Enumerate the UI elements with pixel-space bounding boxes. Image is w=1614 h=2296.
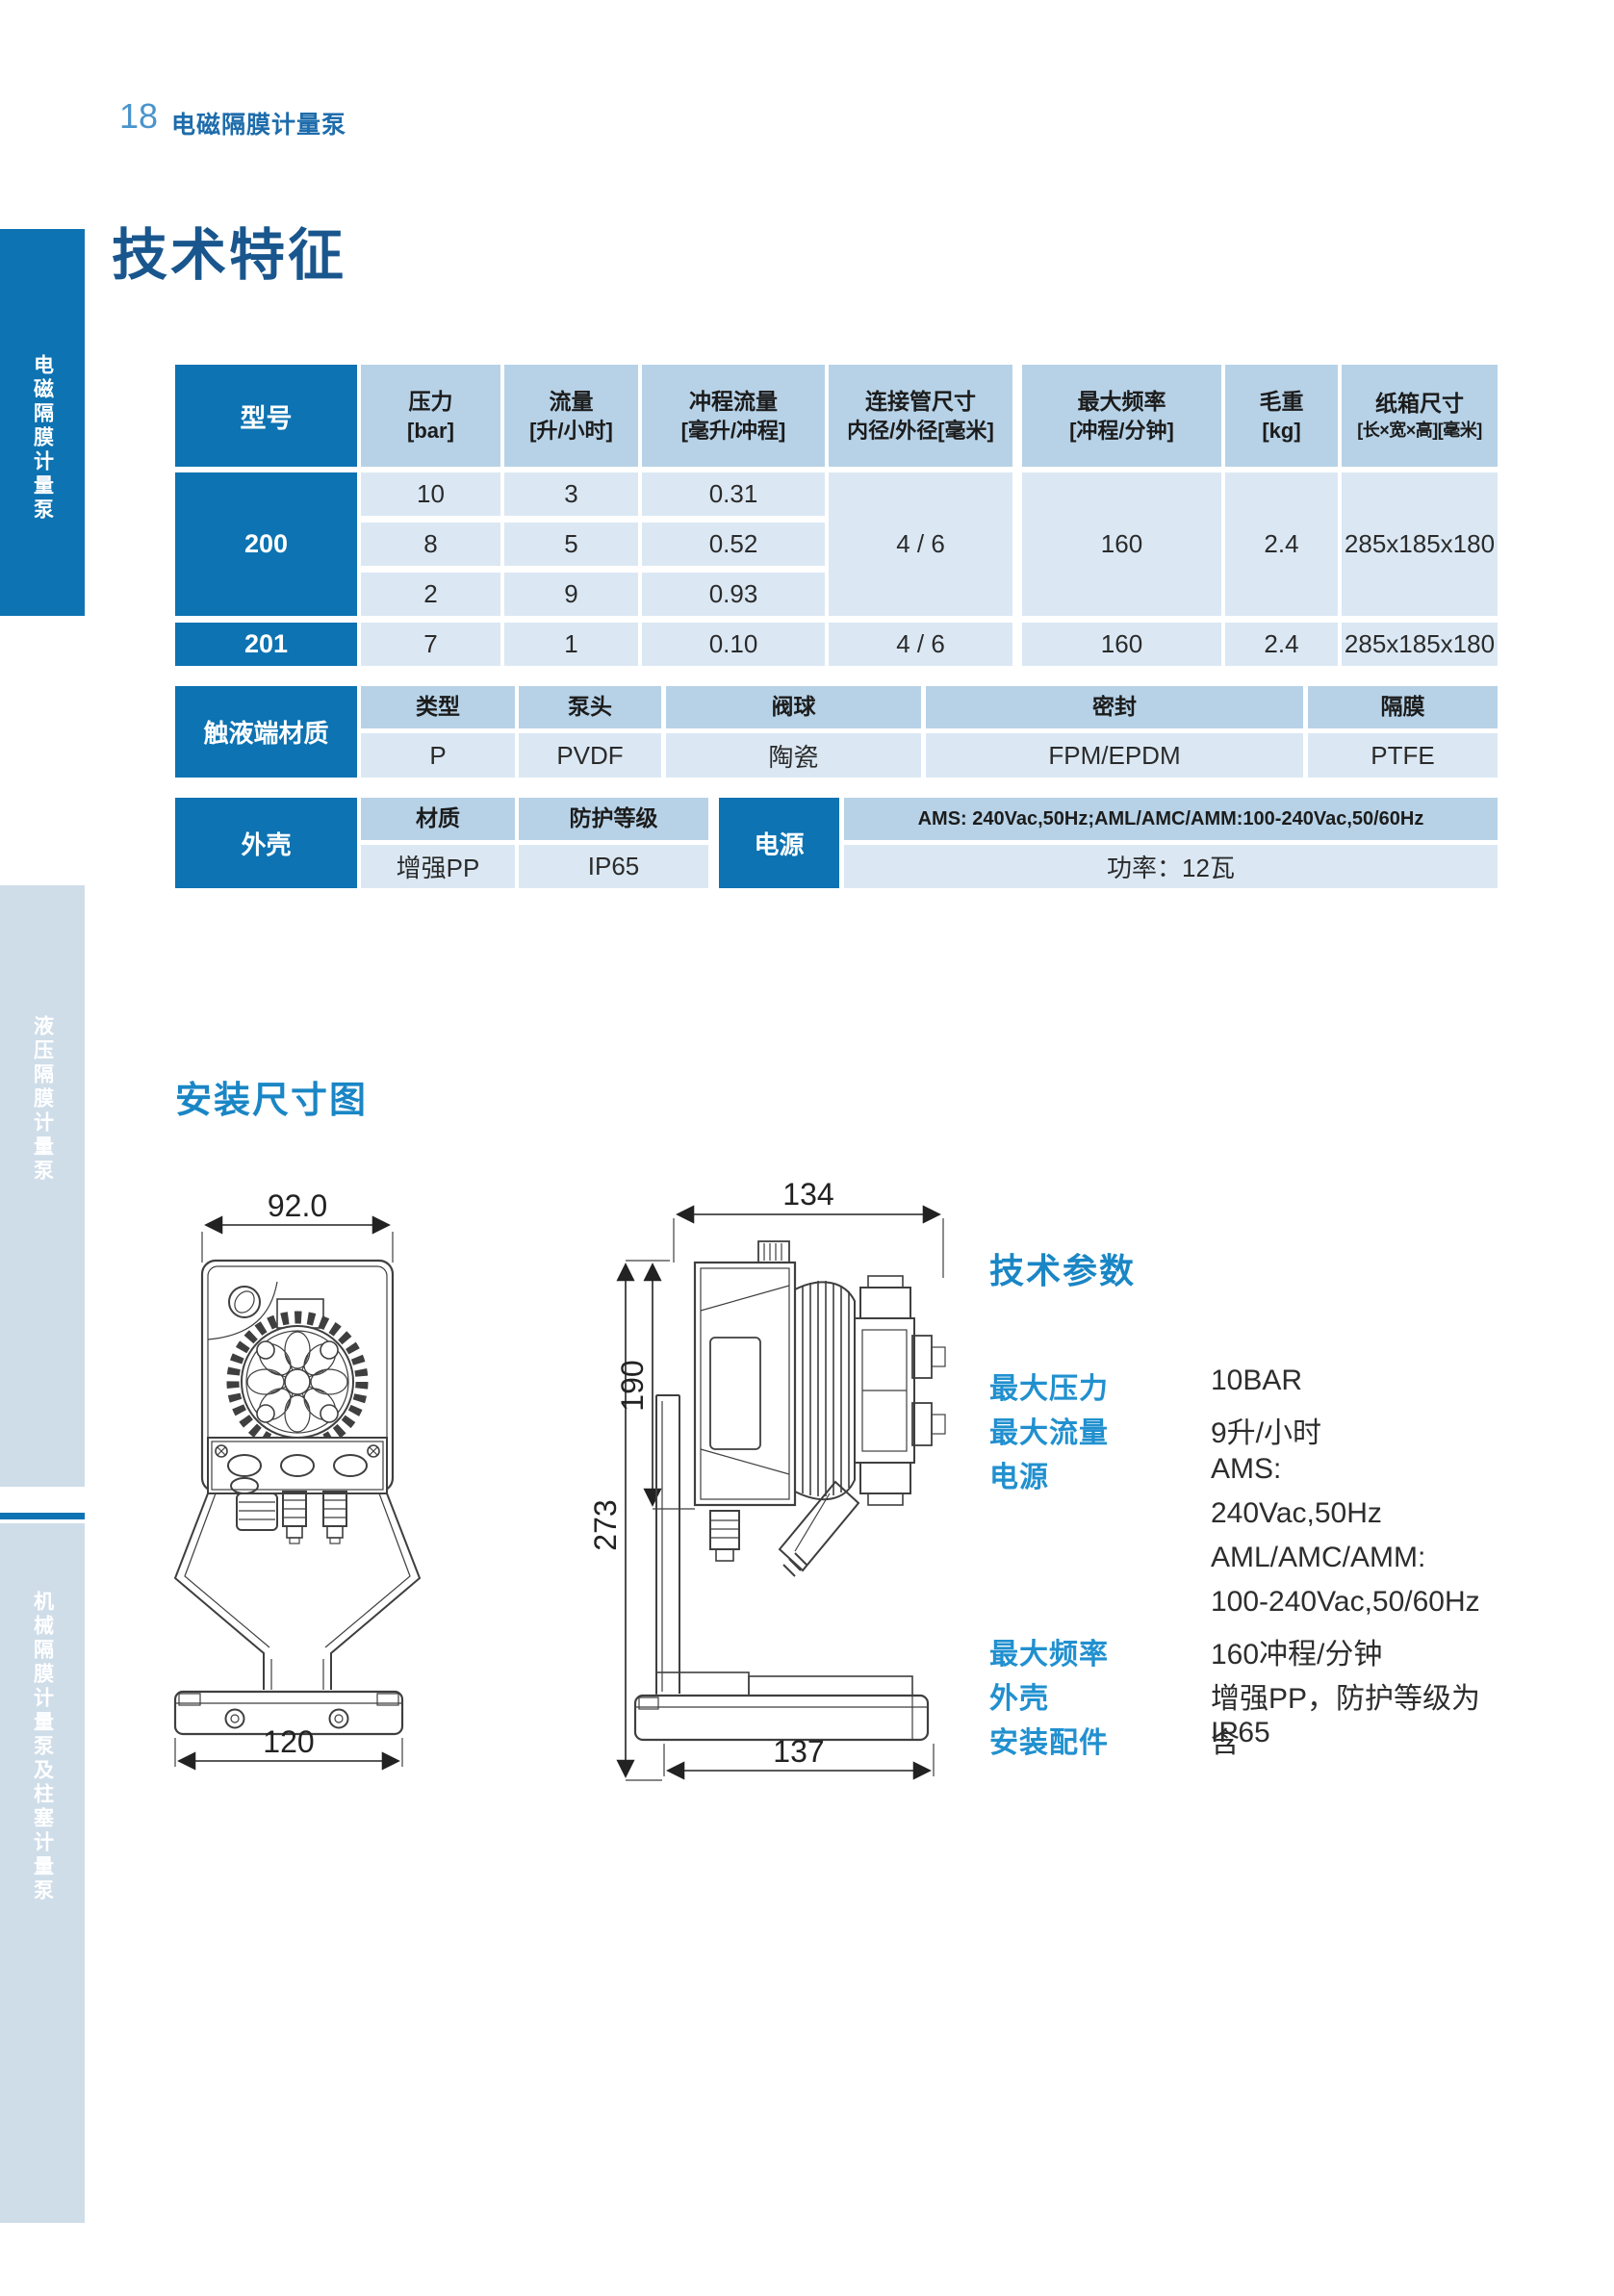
param-value: 240Vac,50Hz [1211,1497,1528,1530]
spec-cell-pressure: 8 [361,523,500,566]
spec-cell-pressure: 2 [361,573,500,616]
sidebar-tab-label: 机械隔膜计量泵及柱塞计量泵 [33,1523,53,2223]
param-value: AML/AMC/AMM: [1211,1542,1528,1574]
param-label: 最大频率 [989,1630,1201,1672]
param-label: 外壳 [989,1674,1201,1717]
power-wattage: 功率：12瓦 [844,845,1498,888]
materials-value-ball: 陶瓷 [666,733,921,778]
header-line2: [kg] [1262,417,1300,446]
spec-cell-weight: 2.4 [1225,472,1338,616]
spec-cell-pipe: 4 / 6 [829,472,1012,616]
spec-header-frequency: 最大频率 [冲程/分钟] [1022,365,1221,467]
param-value: 10BAR [1211,1365,1528,1397]
spec-model-200: 200 [175,472,357,616]
spec-cell-flow: 9 [504,573,638,616]
sidebar-tab-label: 电磁隔膜计量泵 [33,229,53,616]
page-category: 电磁隔膜计量泵 [171,106,346,140]
sidebar-tab-mechanical-pump: 机械隔膜计量泵及柱塞计量泵 [0,1523,85,2223]
page-number: 18 [119,96,158,137]
housing-label: 外壳 [175,798,357,888]
spec-cell-carton: 285x185x180 [1342,623,1498,666]
param-value: 9升/小时 [1211,1409,1528,1451]
spec-cell-frequency: 160 [1022,472,1221,616]
spec-cell-pressure: 7 [361,623,500,666]
installation-section-title: 安装尺寸图 [175,1070,368,1123]
header-line1: 纸箱尺寸 [1375,389,1464,419]
materials-value-diaphragm: PTFE [1308,733,1498,778]
materials-header-ball: 阀球 [666,686,921,728]
header-line2: [长×宽×高][毫米] [1357,419,1482,442]
spec-cell-flow: 3 [504,472,638,516]
spec-header-model: 型号 [175,365,357,467]
header-line2: [bar] [407,417,454,446]
materials-label: 触液端材质 [175,686,357,778]
spec-model-201: 201 [175,623,357,666]
spec-cell-pipe: 4 / 6 [829,623,1012,666]
spec-cell-stroke: 0.93 [642,573,825,616]
catalog-page: 电磁隔膜计量泵 液压隔膜计量泵 机械隔膜计量泵及柱塞计量泵 18 电磁隔膜计量泵… [0,0,1614,2296]
spec-header-flow: 流量 [升/小时] [504,365,638,467]
dim-side-body-height: 190 [615,1360,650,1411]
pump-front-view-drawing: 92.0 [164,1193,539,1799]
spec-cell-stroke: 0.31 [642,472,825,516]
sidebar-tab-solenoid-pump: 电磁隔膜计量泵 [0,229,85,616]
sidebar-divider [0,1513,85,1519]
spec-cell-pressure: 10 [361,472,500,516]
header-line2: [毫升/冲程] [681,417,786,446]
power-spec: AMS: 240Vac,50Hz;AML/AMC/AMM:100-240Vac,… [844,798,1498,840]
dim-front-width: 92.0 [268,1188,327,1223]
spec-header-model-label: 型号 [241,397,293,435]
dim-side-base: 137 [773,1734,824,1769]
param-label: 最大流量 [989,1409,1201,1451]
header-line1: 最大频率 [1078,387,1166,417]
housing-header-material: 材质 [361,798,515,840]
header-line1: 毛重 [1260,387,1304,417]
dim-side-width: 134 [782,1177,833,1212]
materials-value-type: P [361,733,515,778]
pump-side-view-drawing: 134 273 190 [606,1193,1020,1819]
spec-cell-weight: 2.4 [1225,623,1338,666]
spec-header-carton: 纸箱尺寸 [长×宽×高][毫米] [1342,365,1498,467]
materials-value-seal: FPM/EPDM [926,733,1303,778]
param-label: 电源 [989,1453,1201,1495]
param-label: 安装配件 [989,1719,1201,1761]
param-value: 100-240Vac,50/60Hz [1211,1586,1528,1619]
materials-header-seal: 密封 [926,686,1303,728]
header-line2: 内径/外径[毫米] [847,417,994,446]
dim-side-total-height: 273 [588,1499,623,1550]
param-value: 含 [1211,1719,1528,1761]
materials-header-type: 类型 [361,686,515,728]
sidebar-tab-label: 液压隔膜计量泵 [33,885,53,1487]
spec-cell-carton: 285x185x180 [1342,472,1498,616]
header-line1: 压力 [409,387,453,417]
page-title: 技术特征 [112,210,346,291]
header-line1: 冲程流量 [689,387,778,417]
spec-cell-stroke: 0.52 [642,523,825,566]
housing-value-material: 增强PP [361,845,515,888]
header-line1: 连接管尺寸 [865,387,976,417]
param-value: AMS: [1211,1453,1528,1486]
param-label: 最大压力 [989,1365,1201,1407]
power-label: 电源 [719,798,839,888]
materials-header-diaphragm: 隔膜 [1308,686,1498,728]
spec-header-weight: 毛重 [kg] [1225,365,1338,467]
spec-cell-stroke: 0.10 [642,623,825,666]
materials-header-head: 泵头 [519,686,661,728]
tech-params-title: 技术参数 [989,1243,1136,1293]
spec-cell-flow: 1 [504,623,638,666]
param-value: 160冲程/分钟 [1211,1630,1528,1672]
spec-header-pressure: 压力 [bar] [361,365,500,467]
housing-value-protection: IP65 [519,845,708,888]
sidebar-tab-hydraulic-pump: 液压隔膜计量泵 [0,885,85,1487]
housing-header-protection: 防护等级 [519,798,708,840]
materials-value-head: PVDF [519,733,661,778]
spec-cell-frequency: 160 [1022,623,1221,666]
spec-header-pipe: 连接管尺寸 内径/外径[毫米] [829,365,1012,467]
header-line2: [升/小时] [529,417,613,446]
header-line2: [冲程/分钟] [1069,417,1174,446]
header-line1: 流量 [550,387,594,417]
spec-cell-flow: 5 [504,523,638,566]
spec-header-stroke: 冲程流量 [毫升/冲程] [642,365,825,467]
dim-front-base: 120 [263,1724,314,1759]
